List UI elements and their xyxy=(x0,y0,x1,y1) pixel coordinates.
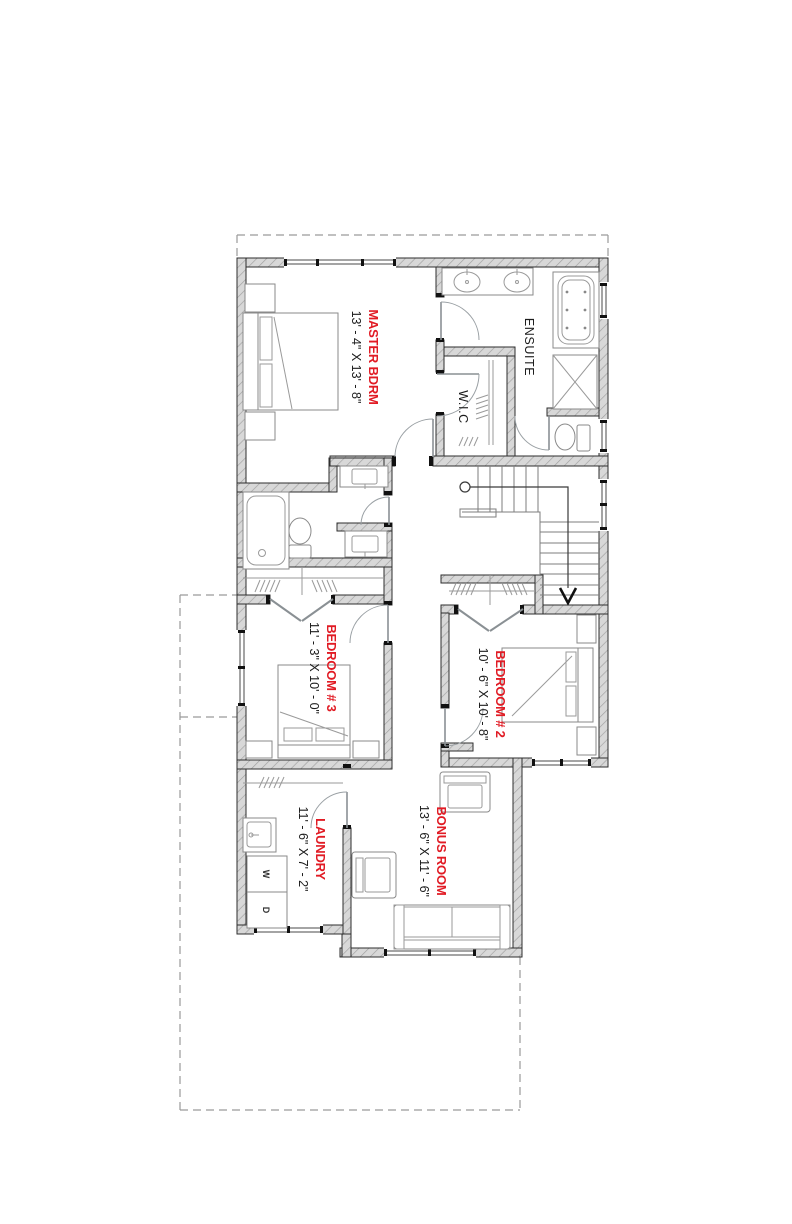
bedroom3-door xyxy=(350,605,388,643)
bath-toilet xyxy=(289,518,311,558)
room-dims-bonus-room: 13' - 6" X 11' - 6" xyxy=(417,805,431,897)
room-label-master-bdrm: MASTER BDRM xyxy=(366,309,381,404)
washer-label: W xyxy=(261,870,271,879)
hanger-icon xyxy=(255,580,280,592)
hanger-icon xyxy=(312,580,337,592)
bath-vanity-upper xyxy=(340,466,388,489)
ensuite-door xyxy=(441,302,479,340)
room-dims-master-bdrm: 13' - 4" X 13' - 8" xyxy=(349,311,363,404)
room-dims-bedroom2: 10' - 6" X 10' - 8" xyxy=(476,648,490,741)
bedroom3-closet-doors xyxy=(270,599,333,621)
master-bed xyxy=(243,284,338,440)
hanger-icon xyxy=(451,583,476,595)
bath-tub xyxy=(243,492,289,569)
window-ensuite-right xyxy=(598,282,609,319)
hanger-icon xyxy=(459,437,478,446)
toilet-room-door xyxy=(515,416,549,450)
bedroom2-bed xyxy=(502,615,596,755)
ensuite-tub xyxy=(553,272,599,348)
stair-direction-line xyxy=(470,487,568,588)
window-stair-right xyxy=(598,479,609,531)
room-label-bedroom2: BEDROOM # 2 xyxy=(493,650,508,737)
ensuite-toilet xyxy=(555,424,590,451)
bonus-sofa xyxy=(394,905,510,949)
dryer-label: D xyxy=(261,907,271,914)
hanger-icon xyxy=(476,395,488,419)
bath-door xyxy=(361,497,389,525)
room-label-bedroom3: BEDROOM # 3 xyxy=(324,624,339,711)
room-dims-laundry: 11' - 6" X 7' - 2" xyxy=(296,807,310,892)
room-label-wic: W.I.C xyxy=(456,390,470,424)
room-label-laundry: LAUNDRY xyxy=(313,818,328,880)
window-master-top xyxy=(284,257,396,268)
stair-start-marker xyxy=(460,482,470,492)
window-toilet-right xyxy=(598,419,609,453)
bath-vanity-lower xyxy=(345,531,387,557)
room-label-ensuite: ENSUITE xyxy=(522,318,536,376)
ensuite-vanity xyxy=(442,268,533,295)
floor-plan-page: MASTER BDRM 13' - 4" X 13' - 8" ENSUITE … xyxy=(0,0,792,1224)
ensuite-shower xyxy=(553,355,597,409)
window-bedroom2-bottom xyxy=(532,757,591,768)
master-entry-door xyxy=(395,419,433,457)
window-bedroom3-left xyxy=(236,630,247,706)
bonus-armchair-left xyxy=(352,852,396,898)
bedroom2-closet-doors xyxy=(458,609,523,631)
room-dims-bedroom3: 11' - 3" X 10' - 0" xyxy=(307,622,321,714)
floor-plan-svg: MASTER BDRM 13' - 4" X 13' - 8" ENSUITE … xyxy=(0,0,792,1224)
hanger-icon xyxy=(502,583,527,595)
room-label-bonus-room: BONUS ROOM xyxy=(434,806,449,895)
laundry-sink xyxy=(243,818,276,852)
